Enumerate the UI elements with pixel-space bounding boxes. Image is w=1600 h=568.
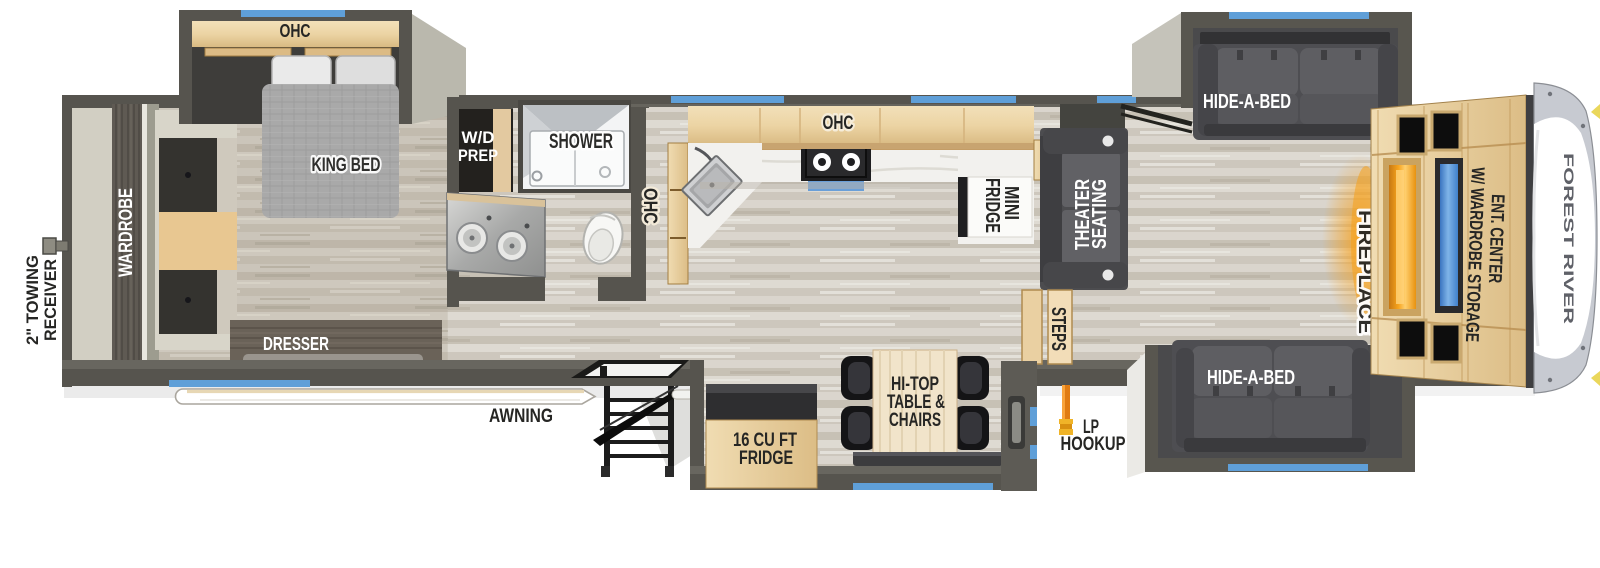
svg-text:RECEIVER: RECEIVER: [41, 259, 60, 341]
svg-text:2" TOWING: 2" TOWING: [23, 255, 42, 345]
svg-text:HOOKUP: HOOKUP: [1061, 434, 1126, 455]
svg-text:FOREST RIVER: FOREST RIVER: [1561, 153, 1576, 324]
svg-text:HIDE-A-BED: HIDE-A-BED: [1207, 367, 1295, 389]
svg-text:WARDROBE: WARDROBE: [115, 188, 137, 277]
svg-text:CHAIRS: CHAIRS: [889, 410, 941, 431]
svg-text:AWNING: AWNING: [489, 406, 553, 427]
svg-text:OHC: OHC: [280, 21, 311, 41]
svg-text:DRESSER: DRESSER: [263, 334, 329, 354]
svg-text:HIDE-A-BED: HIDE-A-BED: [1203, 91, 1291, 113]
svg-text:SEATING: SEATING: [1089, 179, 1111, 249]
svg-text:FRIDGE: FRIDGE: [739, 448, 793, 469]
svg-text:PREP: PREP: [458, 146, 498, 165]
svg-text:OHC: OHC: [639, 188, 660, 224]
svg-text:OHC: OHC: [823, 113, 854, 134]
svg-text:KING BED: KING BED: [312, 154, 381, 176]
svg-text:W/D: W/D: [462, 128, 495, 147]
svg-text:SHOWER: SHOWER: [549, 130, 613, 153]
svg-text:FRIDGE: FRIDGE: [981, 178, 1003, 233]
svg-text:STEPS: STEPS: [1047, 307, 1069, 351]
